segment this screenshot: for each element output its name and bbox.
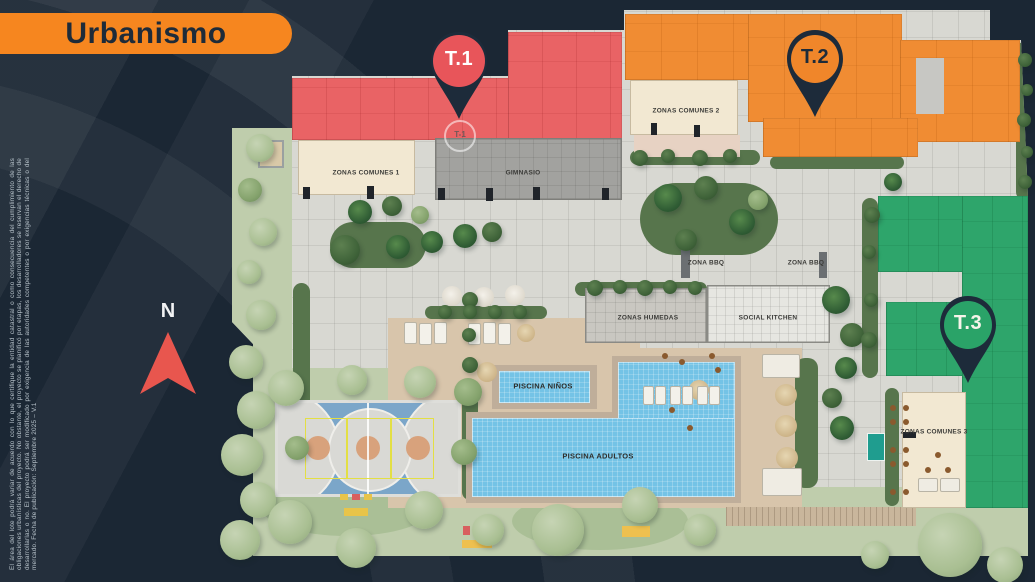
terrace-table xyxy=(890,447,896,453)
terrace-table xyxy=(945,467,951,473)
tower2-building-south-wing xyxy=(763,118,918,157)
tower1-building-east xyxy=(508,32,622,140)
zonas-humedas-label: ZONAS HUMEDAS xyxy=(618,315,679,322)
zona-bbq-right-label: ZONA BBQ xyxy=(788,260,824,267)
zona-bbq-left-label: ZONA BBQ xyxy=(688,260,724,267)
tower3-pin[interactable]: T.3 xyxy=(936,294,1000,386)
boardwalk xyxy=(726,507,916,526)
kiosk-structure xyxy=(258,140,284,168)
tower3-pin-label: T.3 xyxy=(936,312,1000,335)
zonas-comunes-1-building xyxy=(298,140,415,195)
zonas-comunes-2-label: ZONAS COMUNES 2 xyxy=(653,108,720,115)
terrace-table xyxy=(669,407,675,413)
legal-disclaimer: El área del lote podrá variar de acuerdo… xyxy=(9,158,39,570)
tower1-pin-label: T.1 xyxy=(427,48,491,71)
terrace-table xyxy=(903,405,909,411)
hedge xyxy=(770,156,904,169)
terrace-table xyxy=(903,447,909,453)
terrace-table xyxy=(890,489,896,495)
map-pin-icon xyxy=(936,294,1000,386)
gimnasio-label: GIMNASIO xyxy=(506,170,541,177)
urbanismo-masterplan: ZONAS COMUNES 1 GIMNASIO ZONAS COMUNES 2… xyxy=(0,0,1035,582)
volleyball-lines xyxy=(305,418,434,479)
terrace-table xyxy=(679,359,685,365)
tower1-pin[interactable]: T.1 xyxy=(427,30,491,122)
north-arrow-icon xyxy=(138,330,198,398)
zonas-comunes-3-label: ZONAS COMUNES 3 xyxy=(901,429,968,436)
map-pin-icon xyxy=(783,28,847,120)
tower1-ground-marker: T-1 xyxy=(444,120,476,152)
terrace-table xyxy=(890,419,896,425)
planting-island xyxy=(640,183,778,255)
zonas-comunes-2-terrace xyxy=(634,135,740,157)
tower2-pin[interactable]: T.2 xyxy=(783,28,847,120)
piscina-adultos-label: PISCINA ADULTOS xyxy=(562,452,633,461)
hedge xyxy=(425,306,547,319)
north-label: N xyxy=(147,300,189,323)
ping-pong-table xyxy=(867,433,885,461)
tower2-courtyard-notch xyxy=(916,58,944,114)
terrace-table xyxy=(903,489,909,495)
terrace-table xyxy=(687,425,693,431)
page-title: Urbanismo xyxy=(65,17,226,51)
terrace-table xyxy=(662,353,668,359)
terrace-table xyxy=(925,467,931,473)
social-kitchen-label: SOCIAL KITCHEN xyxy=(739,315,798,322)
tower2-pin-label: T.2 xyxy=(783,46,847,69)
zonas-comunes-1-label: ZONAS COMUNES 1 xyxy=(333,170,400,177)
terrace-table xyxy=(890,461,896,467)
terrace-table xyxy=(903,419,909,425)
hedge xyxy=(862,198,878,378)
piscina-ninos-label: PISCINA NIÑOS xyxy=(513,382,572,391)
planting-bed xyxy=(330,222,426,268)
terrace-table xyxy=(890,405,896,411)
hedge xyxy=(293,283,310,418)
terrace-table xyxy=(903,461,909,467)
tower3-building-upper-wing xyxy=(878,196,970,272)
sports-court xyxy=(278,403,458,494)
map-pin-icon xyxy=(427,30,491,122)
terrace-table xyxy=(935,452,941,458)
tower2-building-west xyxy=(625,14,755,80)
terrace-table xyxy=(715,367,721,373)
terrace-table xyxy=(709,353,715,359)
title-banner: Urbanismo xyxy=(0,13,292,54)
